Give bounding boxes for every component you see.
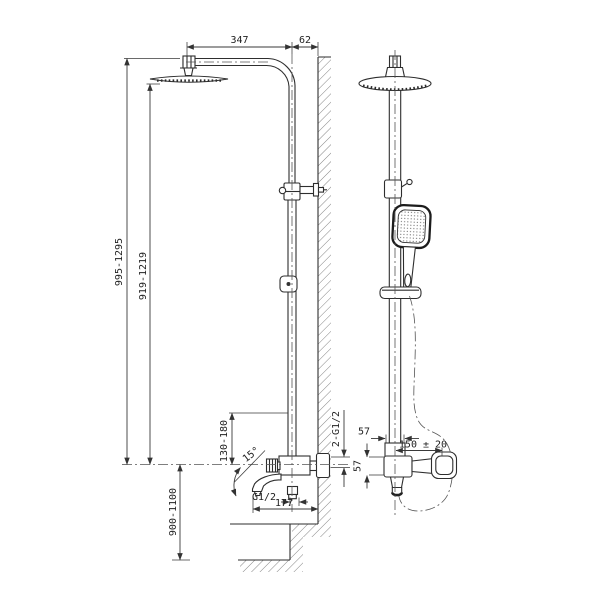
dim-height-overall: 995-1295 <box>114 238 125 286</box>
wall-flange <box>317 454 330 478</box>
diverter-bracket-front <box>385 179 413 198</box>
hose-outlet <box>391 477 404 488</box>
slider-holder-side <box>280 276 297 292</box>
technical-drawing-page: 347 62 995-1295 919-1219 130-180 15° G1/… <box>0 0 600 600</box>
telescopic-clamp <box>279 183 300 200</box>
dim-handle-span: 150 ± 20 <box>399 440 447 451</box>
hand-shower <box>390 205 431 292</box>
ball-joint <box>184 68 193 76</box>
dim-spout-thread: G1/2 <box>252 492 276 503</box>
spray-face <box>397 210 426 244</box>
dim-mixer-body-height: 57 <box>353 460 364 472</box>
clamp-knob <box>279 187 285 193</box>
wall-and-floor-lines <box>172 57 331 560</box>
dim-arm-length: 347 <box>230 35 248 46</box>
dim-spout-reach: 177 <box>275 498 293 509</box>
dim-wall-offset: 62 <box>299 35 311 46</box>
diverter-lever <box>407 179 412 184</box>
slide-bar-holder-front <box>380 287 421 299</box>
hose-connection-side <box>288 487 298 495</box>
centerlines <box>122 50 395 517</box>
dim-spout-angle: 15° <box>241 445 262 465</box>
overhead-shower-head-side <box>150 56 228 82</box>
dim-height-head: 919-1219 <box>138 252 149 300</box>
mixer-body-front <box>384 456 412 477</box>
dim-mixer-height: 900-1100 <box>168 488 179 536</box>
mixer-body-side <box>279 456 310 475</box>
bracket-anchor <box>319 188 324 193</box>
tub-spout <box>253 474 282 492</box>
dim-connector-width: 57 <box>358 427 370 438</box>
shower-system-drawing: 347 62 995-1295 919-1219 130-180 15° G1/… <box>0 0 600 600</box>
dim-wall-inlets: 2-G1/2 <box>331 411 342 447</box>
dim-riser-adjust: 130-180 <box>219 420 230 462</box>
